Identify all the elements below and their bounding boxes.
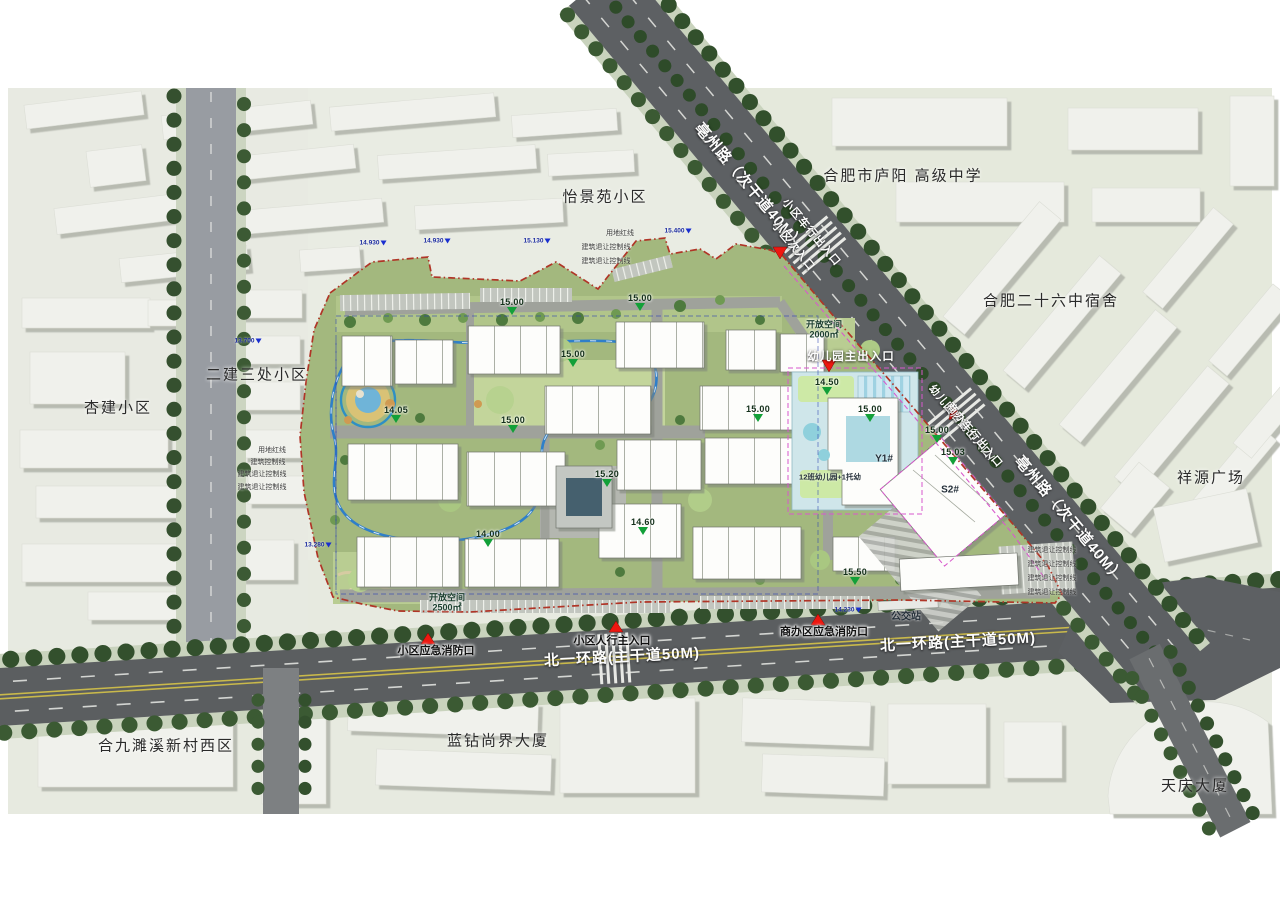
plan-canvas bbox=[0, 0, 1280, 905]
setback-note: 建筑退让控制线 bbox=[1028, 587, 1077, 597]
community-facility bbox=[556, 466, 612, 528]
road-left-street bbox=[174, 88, 246, 658]
setback-note: 用地红线 bbox=[606, 228, 634, 238]
setback-note: 建筑控制线 bbox=[251, 457, 286, 467]
setback-note: 建筑退让控制线 bbox=[1028, 545, 1077, 555]
site-master-plan: 怡景苑小区合肥市庐阳 高级中学合肥二十六中宿舍祥源广场二建三处小区杏建小区合九濉… bbox=[0, 0, 1280, 905]
road-southwest-branch bbox=[258, 668, 305, 814]
setback-note: 建筑退让控制线 bbox=[582, 242, 631, 252]
setback-note: 建筑退让控制线 bbox=[1028, 573, 1077, 583]
setback-note: 用地红线 bbox=[258, 445, 286, 455]
setback-note: 建筑退让控制线 bbox=[238, 469, 287, 479]
setback-note: 建筑退让控制线 bbox=[238, 482, 287, 492]
setback-note: 建筑退让控制线 bbox=[582, 256, 631, 266]
setback-note: 建筑退让控制线 bbox=[1028, 559, 1077, 569]
